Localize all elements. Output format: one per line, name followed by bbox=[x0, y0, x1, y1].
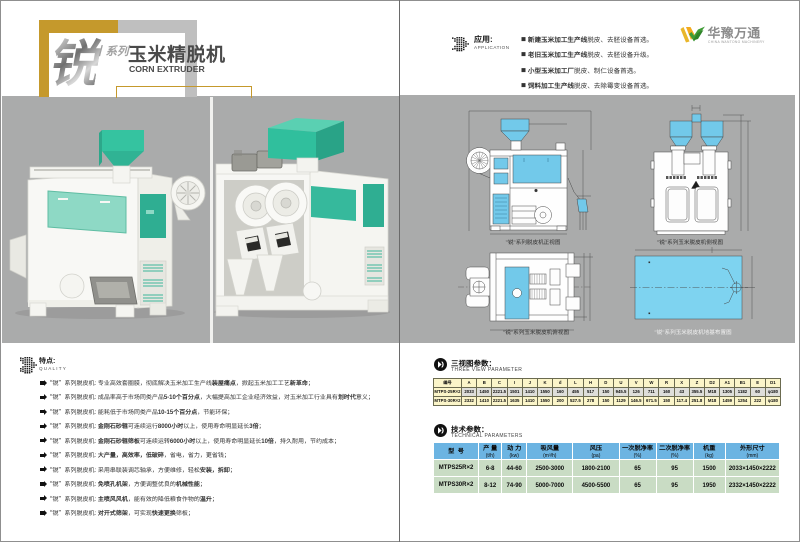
svg-text:CHINA WANTONG MACHINERY: CHINA WANTONG MACHINERY bbox=[708, 40, 765, 44]
svg-text:"锐"系列脱皮机正视图: "锐"系列脱皮机正视图 bbox=[506, 238, 561, 246]
svg-text:"锐"系列玉米脱皮机侧视图: "锐"系列玉米脱皮机侧视图 bbox=[657, 238, 724, 246]
svg-text:"锐"系列玉米脱皮机俯视图: "锐"系列玉米脱皮机俯视图 bbox=[503, 328, 570, 336]
svg-text:华豫万通: 华豫万通 bbox=[708, 23, 761, 42]
svg-text:"锐"系列玉米脱皮机地基布置图: "锐"系列玉米脱皮机地基布置图 bbox=[654, 328, 732, 336]
